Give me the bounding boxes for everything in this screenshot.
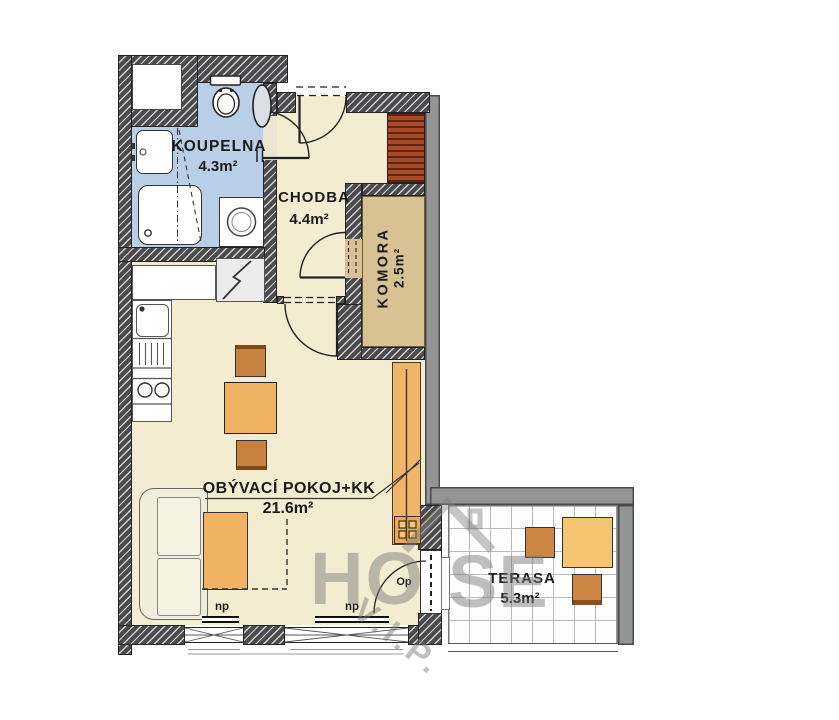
room-label-chodba: CHODBA <box>278 190 350 205</box>
wall-hall-top-right <box>346 92 430 113</box>
wall-bottom-left <box>118 625 185 645</box>
room-area-chodba: 4.4m² <box>289 212 328 227</box>
kitchen-counter-top <box>132 265 216 300</box>
daybed <box>203 512 248 590</box>
sink-icon <box>136 130 173 174</box>
terrace-table <box>562 517 613 568</box>
room-label-komora: KOMORA <box>376 227 392 308</box>
outer-wall-right <box>425 95 440 505</box>
terrace-chair-bottom <box>572 574 602 605</box>
wall-left <box>118 55 132 655</box>
wall-komora-top <box>362 183 425 196</box>
room-area-komora: 2.5m² <box>392 227 407 308</box>
window-left <box>185 627 243 643</box>
room-label-obyvaci-pokoj: OBÝVACÍ POKOJ+KK <box>203 481 376 497</box>
wall-hall-top-left <box>277 92 296 113</box>
dining-chair-bottom <box>236 440 267 470</box>
komora-door-opening <box>345 239 362 278</box>
room-area-koupelna: 4.3m² <box>198 159 237 174</box>
wall-bottom-middle <box>243 625 285 645</box>
terrace-railing <box>448 643 618 652</box>
shower-icon <box>138 185 202 245</box>
room-area-obyvaci-pokoj: 21.6m² <box>263 501 314 517</box>
kitchen-sink-icon <box>136 304 169 337</box>
wall-lrdoor-right <box>336 296 345 304</box>
room-label-koupelna: KOUPELNA <box>172 139 267 155</box>
terrace-wall-right <box>618 505 634 645</box>
installation-shaft <box>132 64 182 110</box>
terrace-wall-top <box>430 487 634 505</box>
room-label-komora-block: KOMORA 2.5m² <box>376 227 407 308</box>
dining-table <box>224 382 277 434</box>
electric-panel-icon <box>216 258 265 302</box>
wall-komora-left-lower <box>337 304 362 360</box>
window-marker-label-left: np <box>215 602 229 614</box>
sofa-cushion-top <box>157 497 201 556</box>
wall-lrdoor-left <box>277 296 284 304</box>
dining-chair-top <box>235 345 266 377</box>
floor-plan: KOUPELNA 4.3m² CHODBA 4.4m² KOMORA 2.5m²… <box>0 0 839 720</box>
window-marker-bar-left <box>202 616 239 623</box>
sofa-cushion-bottom <box>157 558 201 616</box>
watermark-text-part2: SE <box>448 545 549 619</box>
washing-machine-icon <box>219 197 264 247</box>
hall-wardrobe <box>387 113 425 183</box>
